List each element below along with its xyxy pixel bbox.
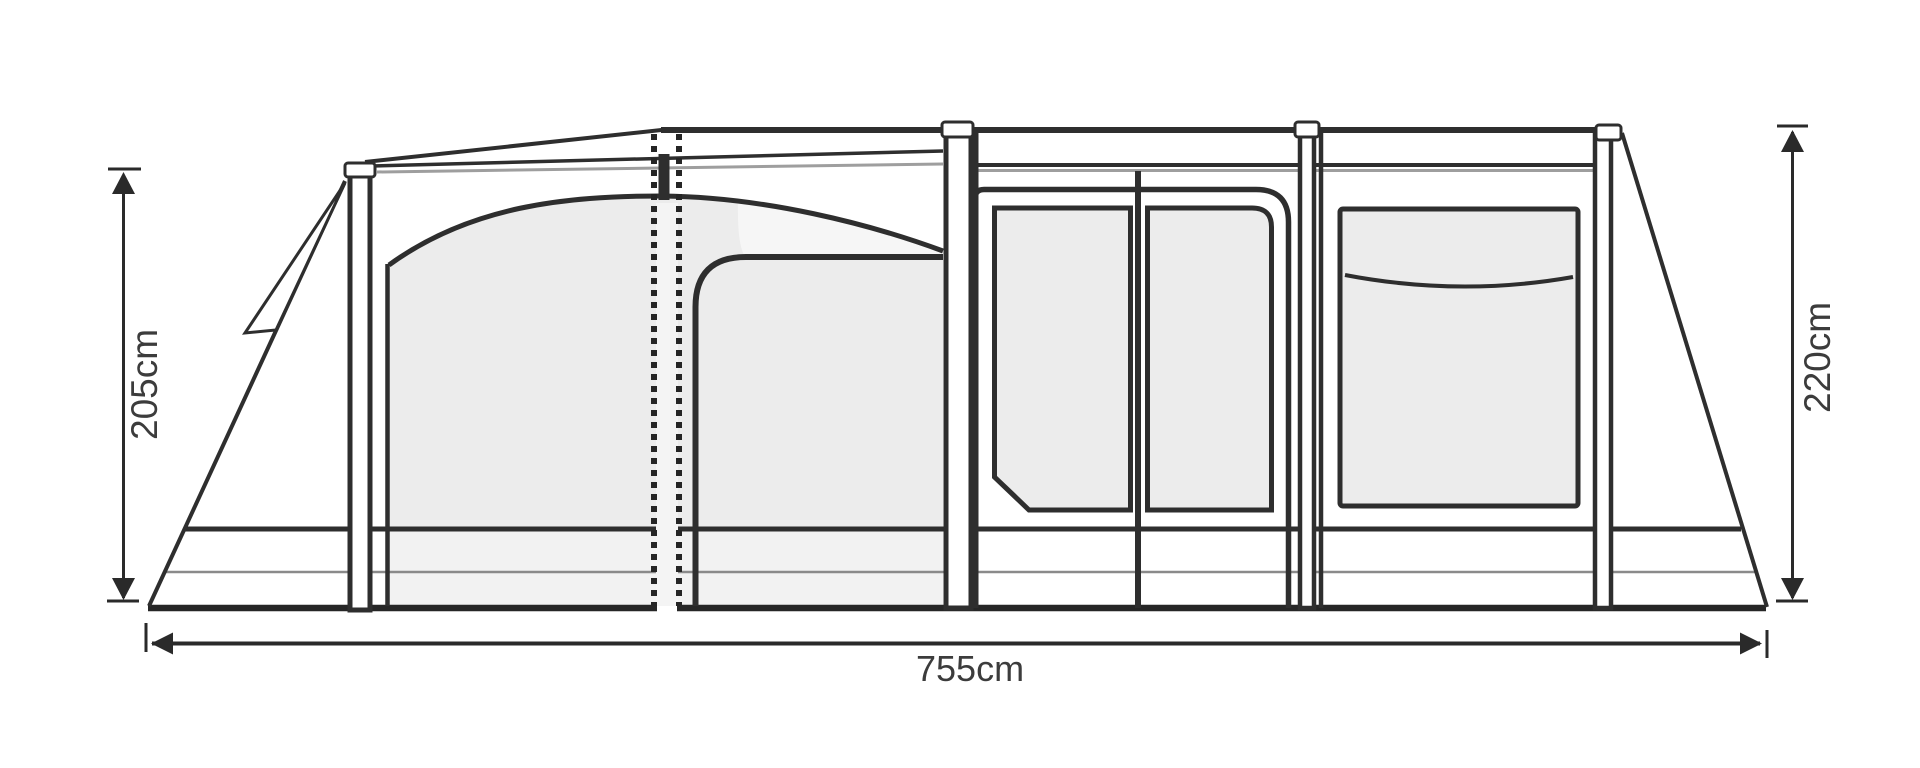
svg-text:205cm: 205cm (124, 329, 165, 440)
svg-text:755cm: 755cm (916, 648, 1024, 689)
svg-text:220cm: 220cm (1797, 302, 1838, 413)
